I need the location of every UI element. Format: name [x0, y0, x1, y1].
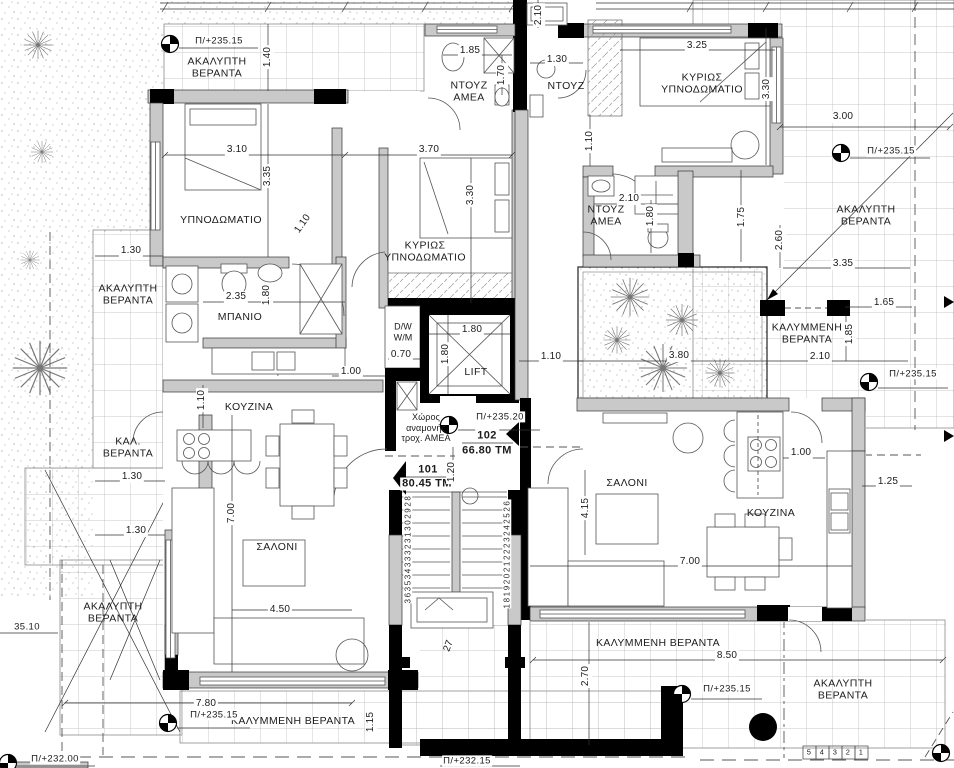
floor-plan: ΑΚΑΛΥΠΤΗ ΒΕΡΑΝΤΑ ΝΤΟΥΖ ΑΜΕΑ ΝΤΟΥΖ ΚΥΡΙΩΣ… [0, 0, 954, 768]
level-marker-icon [674, 686, 691, 703]
plan-linework [0, 0, 954, 768]
planted-courtyard [578, 267, 767, 403]
level-marker-icon [441, 417, 458, 434]
level-marker-icon [0, 755, 17, 768]
level-marker-icon [933, 745, 950, 762]
level-marker-icon [160, 715, 177, 732]
level-marker-icon [162, 36, 179, 53]
level-marker-icon [861, 374, 878, 391]
level-marker-icon [833, 145, 850, 162]
